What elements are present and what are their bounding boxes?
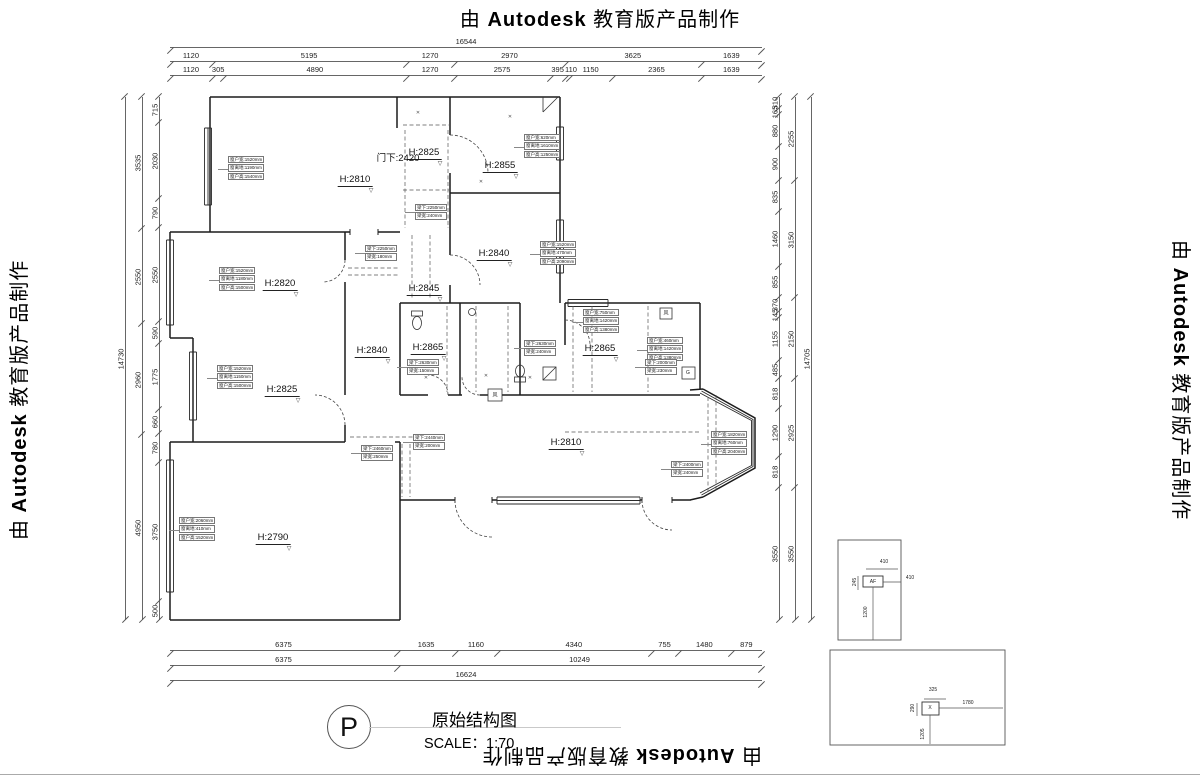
drawing-title: 原始结构图 <box>402 706 547 731</box>
section-symbol-letter: P <box>340 712 358 743</box>
viewport-bottom-edge <box>0 774 1200 775</box>
door-height-note: 门下:2420 <box>377 150 420 164</box>
fixtures <box>412 97 696 401</box>
beam-dashed-lines <box>348 125 716 497</box>
jamb-ticks <box>350 229 672 503</box>
drawing-sheet: 由 Autodesk 教育版产品制作 由 Autodesk 教育版产品制作 由 … <box>0 0 1200 776</box>
door-arcs <box>315 135 672 537</box>
wall-lines <box>170 97 755 620</box>
detail-boxes <box>830 540 1005 745</box>
drawing-scale: SCALE：1:70 <box>424 732 514 753</box>
floor-plan-linework <box>0 0 1200 776</box>
section-symbol-circle: P <box>327 705 371 749</box>
